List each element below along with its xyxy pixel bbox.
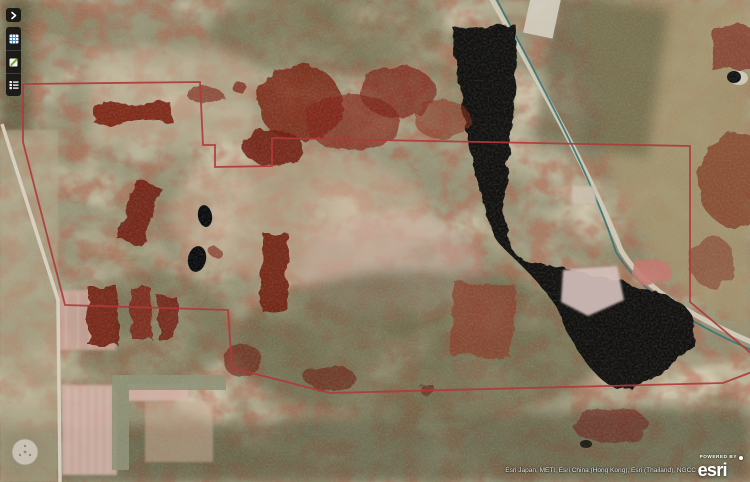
chevron-right-icon bbox=[9, 11, 18, 20]
edit-pencil-icon bbox=[9, 57, 19, 67]
legend-list-icon bbox=[9, 80, 19, 90]
esri-logo-text: esri bbox=[698, 461, 743, 479]
map-viewport: Esri Japan, METI, Esri China (Hong Kong)… bbox=[0, 0, 750, 482]
grain-overlay bbox=[0, 0, 750, 482]
map-attribution: Esri Japan, METI, Esri China (Hong Kong)… bbox=[505, 467, 696, 475]
edit-button[interactable] bbox=[6, 50, 21, 73]
toolbar-button-group bbox=[6, 27, 21, 96]
basemap-icon bbox=[9, 34, 19, 44]
map-canvas[interactable] bbox=[0, 0, 750, 482]
legend-button[interactable] bbox=[6, 73, 21, 96]
map-toolbar bbox=[6, 8, 21, 96]
basemap-button[interactable] bbox=[6, 27, 21, 50]
toolbar-collapse-button[interactable] bbox=[6, 8, 21, 22]
globe-icon bbox=[739, 456, 743, 460]
esri-logo[interactable]: POWERED BY esri bbox=[698, 455, 743, 479]
